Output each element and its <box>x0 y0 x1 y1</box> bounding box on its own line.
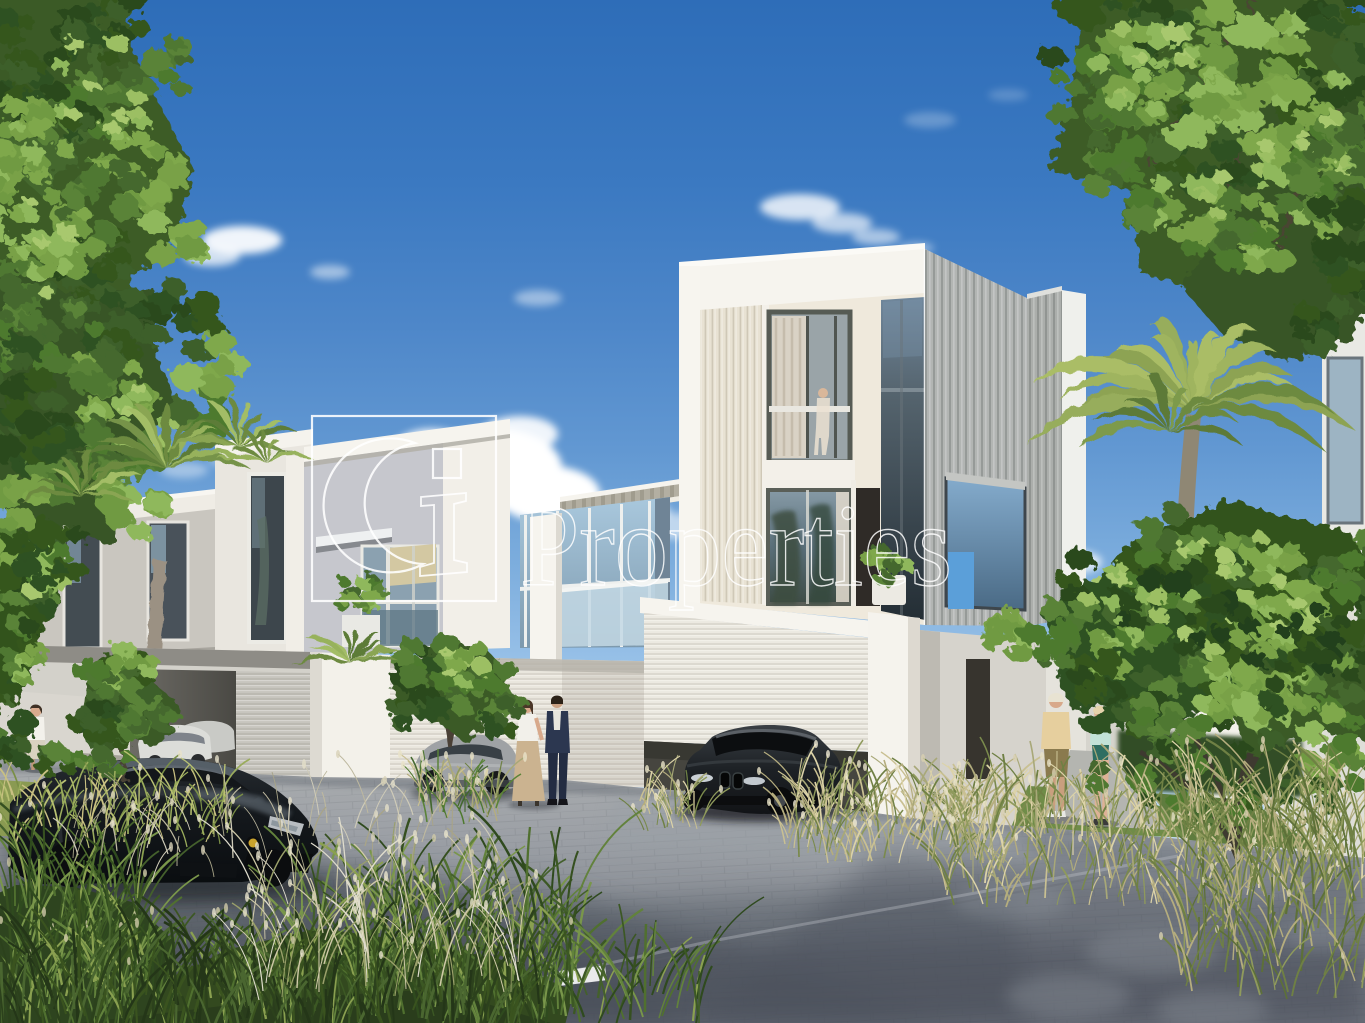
svg-text:Properties: Properties <box>520 480 952 611</box>
